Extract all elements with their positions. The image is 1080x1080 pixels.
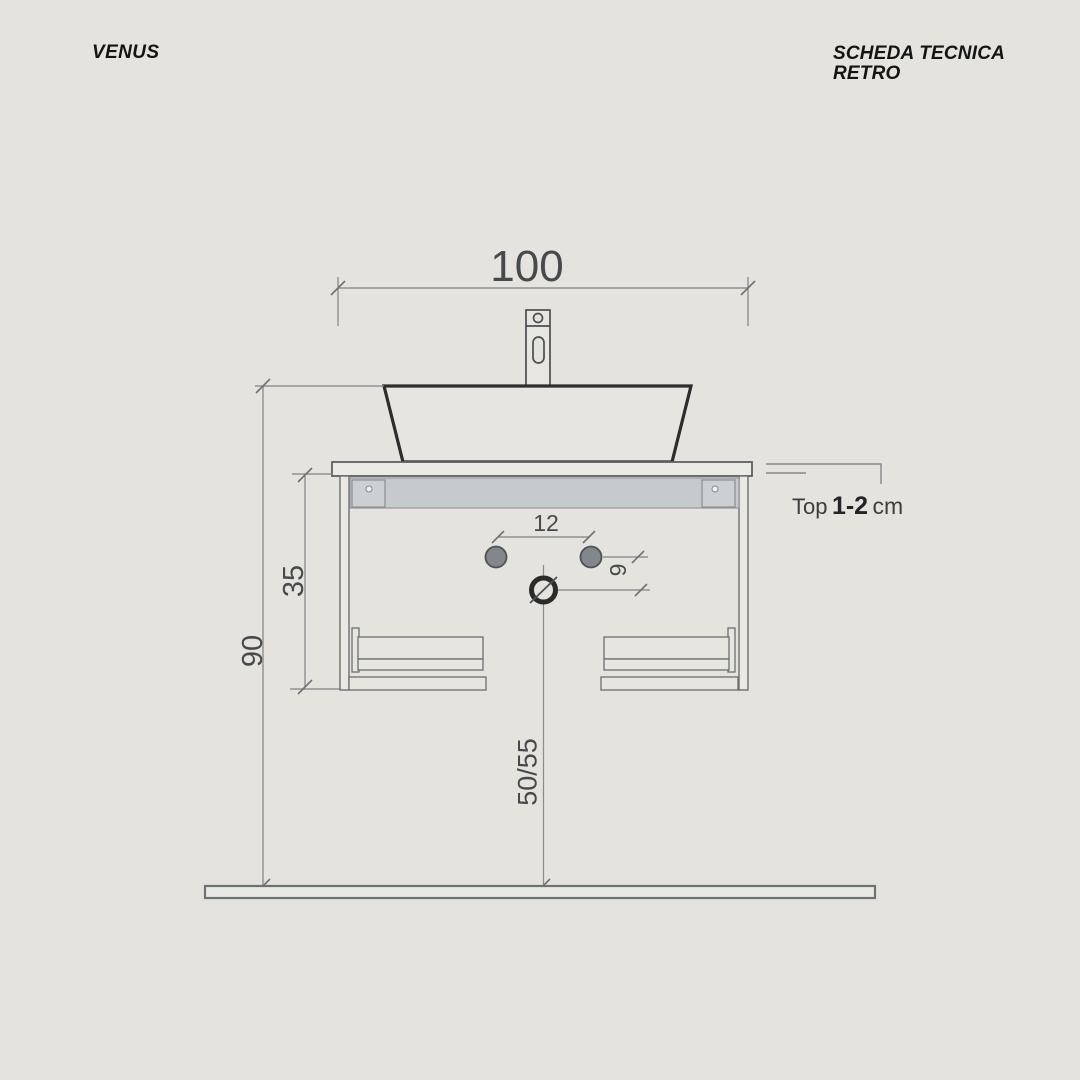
water-supply-holes	[486, 547, 602, 568]
faucet-screw-hole	[534, 314, 543, 323]
faucet-slot	[533, 337, 544, 363]
drawer-left	[349, 628, 486, 690]
left-bracket-screw-hole	[366, 486, 372, 492]
dim-basin-rim-height-label: 90	[237, 635, 269, 667]
countertop	[332, 462, 752, 476]
vessel-basin	[384, 386, 691, 462]
cabinet-right-wall	[739, 476, 748, 690]
supply-hole-right	[581, 547, 602, 568]
top-thickness-callout	[766, 464, 881, 484]
drawer-back-panel	[358, 637, 483, 659]
drawer-bottom-rail	[349, 677, 486, 690]
supply-hole-left	[486, 547, 507, 568]
drain-outlet	[530, 577, 557, 603]
top-thickness-prefix: Top	[792, 494, 827, 519]
cabinet-left-wall	[340, 476, 349, 690]
rail-bar	[350, 478, 739, 508]
scheda-tecnica-page: VENUS SCHEDA TECNICA RETRO 100	[0, 0, 1080, 1080]
dim-supply-holes-spacing: 12	[492, 510, 595, 543]
dim-cabinet-height: 35	[278, 468, 341, 694]
dim-basin-rim-height: 90	[237, 379, 384, 893]
dim-drain-offset-label: 9	[605, 564, 631, 577]
drawer-right	[601, 628, 738, 690]
top-thickness-unit: cm	[873, 493, 904, 519]
drawer-slide-rail	[358, 659, 483, 670]
dim-overall-width-label: 100	[490, 242, 563, 291]
dim-drain-offset: 9	[557, 551, 650, 596]
mounting-rail	[350, 478, 739, 508]
right-bracket	[702, 480, 735, 507]
left-bracket	[352, 480, 385, 507]
callout-leader-line	[766, 464, 881, 484]
floor-slab	[205, 886, 875, 898]
top-thickness-value: 1-2	[832, 492, 868, 520]
drawer-back-panel	[604, 637, 729, 659]
drawer-bottom-rail	[601, 677, 738, 690]
dim-drain-height-label: 50/55	[512, 738, 542, 806]
faucet	[526, 310, 550, 386]
drain-centerline: 50/55	[512, 565, 550, 893]
drawer-slide-rail	[604, 659, 729, 670]
top-thickness-label: Top 1-2 cm	[792, 492, 903, 521]
technical-drawing: 100 12	[0, 0, 1080, 1080]
dim-hole-spacing-label: 12	[533, 510, 559, 536]
dim-cabinet-height-label: 35	[278, 565, 310, 597]
right-bracket-screw-hole	[712, 486, 718, 492]
